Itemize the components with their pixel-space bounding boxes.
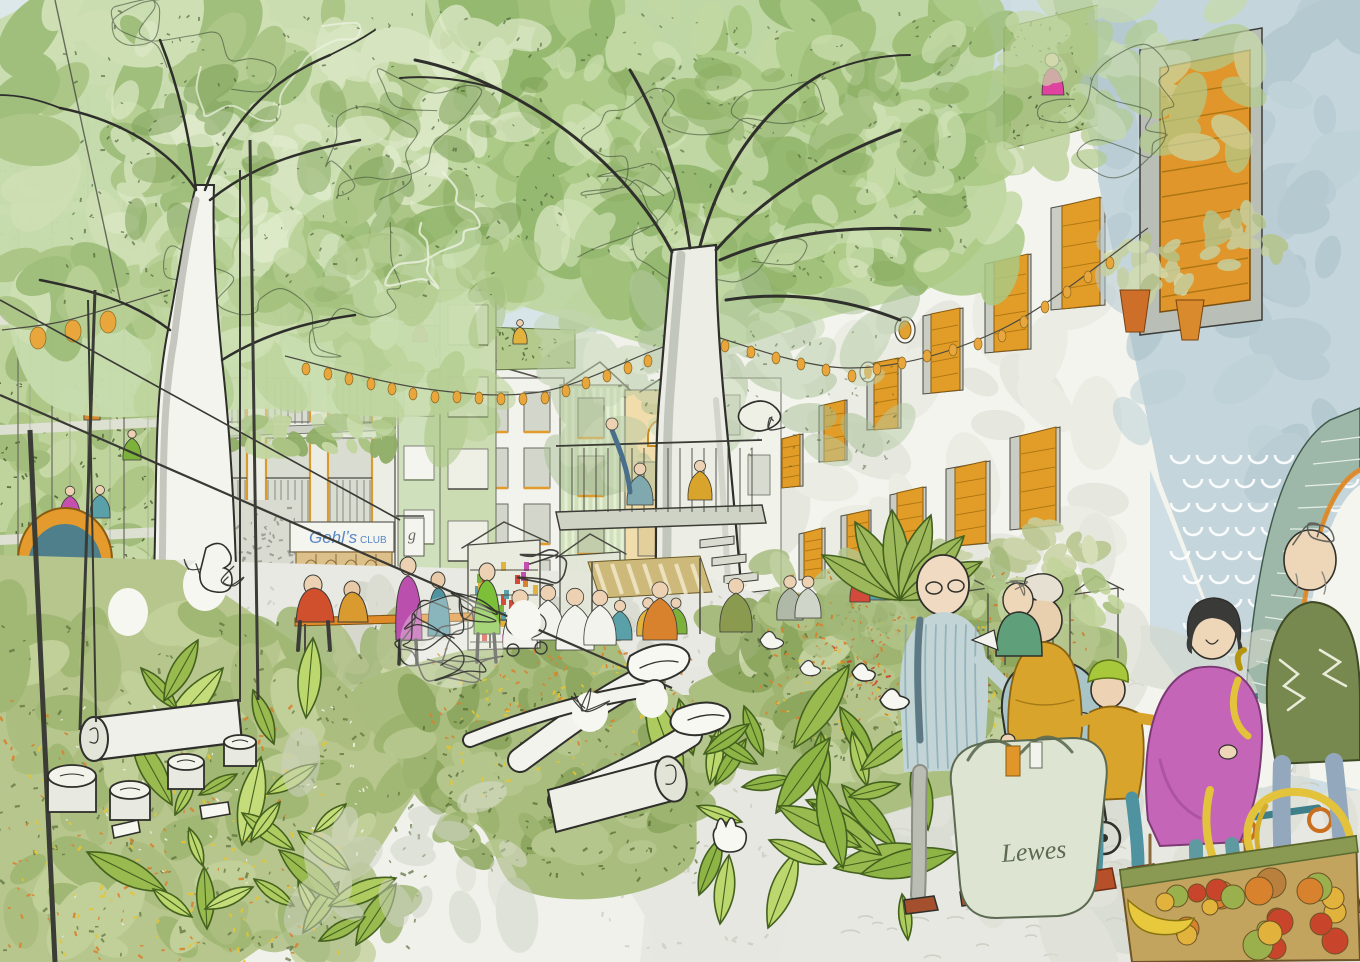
- svg-text:Gehlʼs: Gehlʼs: [309, 528, 358, 547]
- svg-text:Lewes: Lewes: [999, 835, 1067, 869]
- svg-text:g: g: [408, 527, 416, 544]
- svg-text:CLUB: CLUB: [360, 535, 387, 546]
